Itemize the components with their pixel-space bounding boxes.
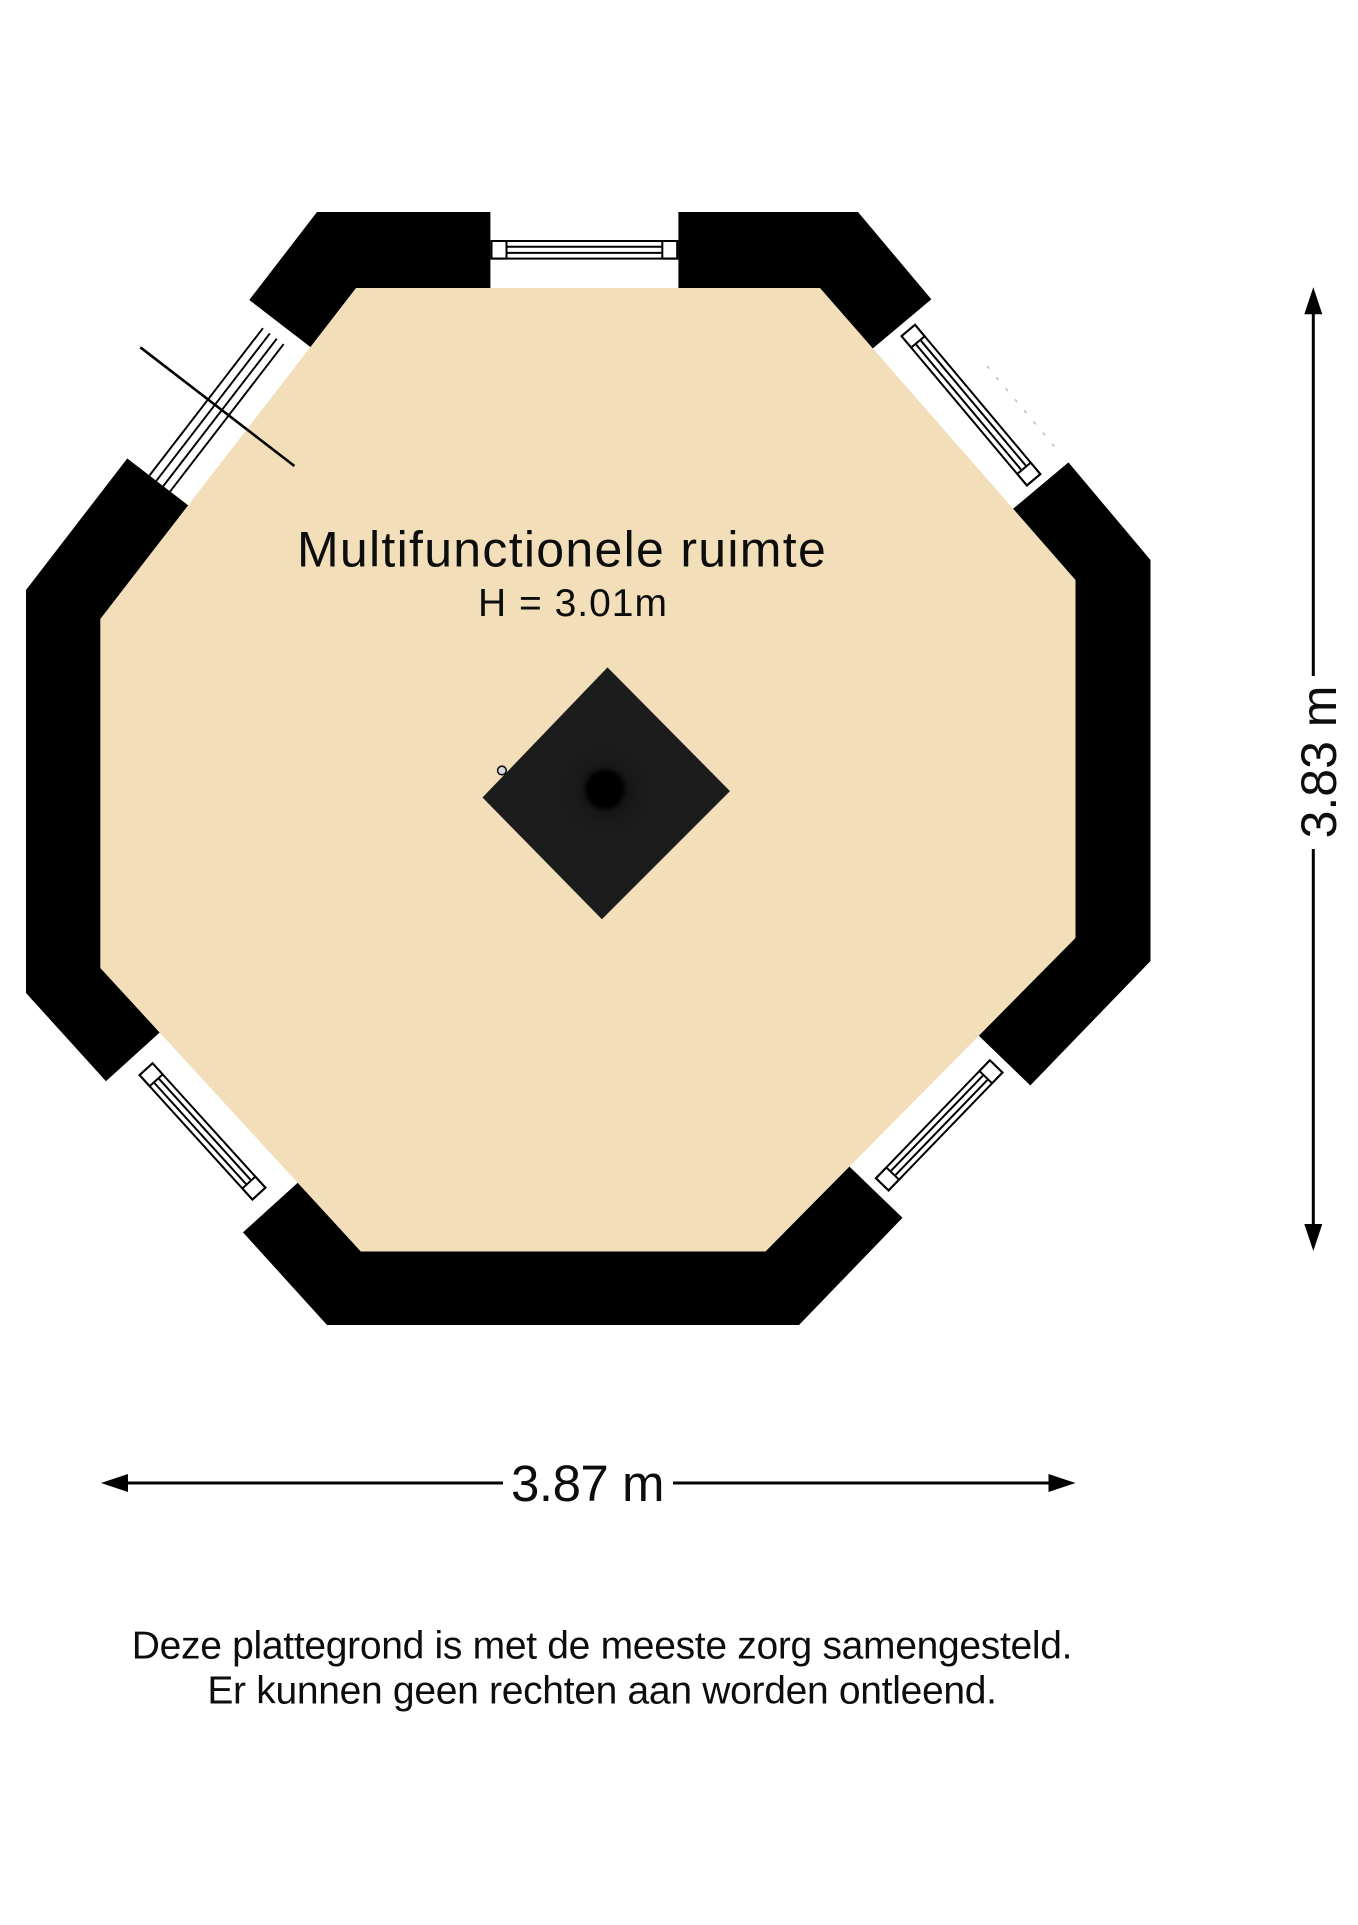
svg-text:H = 3.01m: H = 3.01m (478, 582, 668, 625)
svg-text:Er kunnen geen rechten aan wor: Er kunnen geen rechten aan worden ontlee… (207, 1670, 996, 1713)
svg-text:Multifunctionele ruimte: Multifunctionele ruimte (297, 522, 827, 578)
svg-text:3.87 m: 3.87 m (511, 1455, 664, 1512)
svg-text:Deze plattegrond is met de mee: Deze plattegrond is met de meeste zorg s… (132, 1625, 1072, 1668)
svg-text:3.83 m: 3.83 m (1291, 686, 1347, 839)
